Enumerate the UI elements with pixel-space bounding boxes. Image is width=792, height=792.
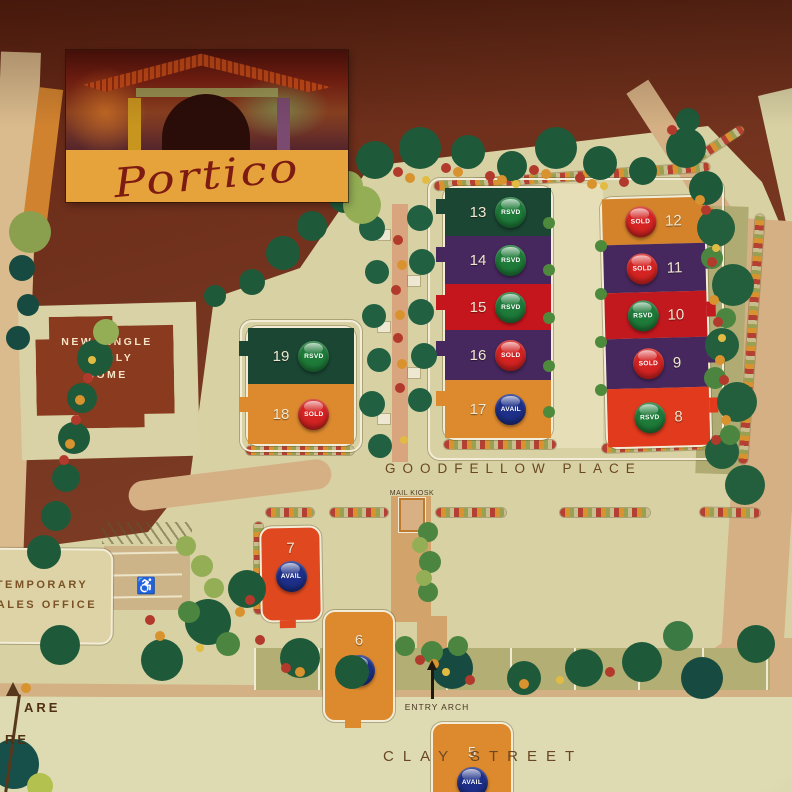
flower-bed <box>266 508 314 517</box>
painting-arch <box>162 94 250 150</box>
entry-arch-arrow-line <box>431 669 434 699</box>
lot-12[interactable]: SOLD 12 <box>602 197 705 246</box>
new-home-label: NEW SINGLE FAMILY HOME <box>42 334 172 383</box>
status-badge: AVAIL <box>275 561 307 593</box>
lot-number: 10 <box>667 306 684 323</box>
lot-7[interactable]: 7 AVAIL <box>259 525 323 622</box>
status-badge: RSVD <box>634 401 666 433</box>
lot-number: 8 <box>674 408 683 425</box>
walk-pad <box>378 230 390 240</box>
lot-19[interactable]: 19 RSVD <box>248 328 354 384</box>
lot-14[interactable]: 14 RSVD <box>445 236 551 284</box>
status-badge: SOLD <box>626 252 658 284</box>
lot-number: 11 <box>667 259 683 276</box>
lot-number: 16 <box>470 347 487 364</box>
lot-number: 6 <box>355 632 363 649</box>
parking-hatch-stripes <box>102 522 192 544</box>
lot-11[interactable]: SOLD 11 <box>603 243 706 294</box>
status-badge: RSVD <box>495 292 526 323</box>
lot-6[interactable]: 6 AVAIL <box>323 610 395 722</box>
walk-pad <box>408 276 420 286</box>
status-badge: SOLD <box>495 340 526 371</box>
lot-number: 12 <box>665 212 682 229</box>
lot-column-18-19: 19 RSVD 18 SOLD <box>246 326 356 446</box>
status-badge: AVAIL <box>495 394 526 425</box>
status-badge: SOLD <box>298 399 329 430</box>
street-label-goodfellow-place: GOODFELLOW PLACE <box>385 461 642 476</box>
status-badge: RSVD <box>495 197 526 228</box>
painting-column-right <box>277 98 290 150</box>
temporary-sales-office-label: TEMPORARY SALES OFFICE <box>0 576 110 616</box>
flower-bed <box>700 507 760 517</box>
lot-16[interactable]: 16 SOLD <box>445 330 551 380</box>
lot-number: 7 <box>286 540 295 557</box>
lot-number: 19 <box>273 348 290 365</box>
lot-13[interactable]: 13 RSVD <box>445 188 551 236</box>
status-badge: RSVD <box>298 341 329 372</box>
lot-number: 15 <box>470 299 487 316</box>
status-badge: RSVD <box>627 299 659 331</box>
street-label-clay-street: CLAY STREET <box>383 748 583 765</box>
walk-pad <box>378 322 390 332</box>
lot-15[interactable]: 15 RSVD <box>445 284 551 330</box>
logo-wordmark: Portico <box>112 145 302 207</box>
flower-bed <box>436 508 506 517</box>
lot-number: 14 <box>470 252 487 269</box>
portico-painting <box>66 50 348 150</box>
walk-pad <box>378 414 390 424</box>
lot-9[interactable]: SOLD 9 <box>605 337 708 390</box>
mail-kiosk-icon <box>399 498 425 532</box>
status-badge: RSVD <box>495 245 526 276</box>
walk-pad <box>408 368 420 378</box>
lot-number: 13 <box>470 204 487 221</box>
status-badge: AVAIL <box>344 655 375 686</box>
flower-bed <box>330 508 388 517</box>
site-plan-photo: NEW SINGLE FAMILY HOME TEMPORARY SALES O… <box>0 0 792 792</box>
lot-number: 18 <box>273 406 290 423</box>
entry-arch-label: ENTRY ARCH <box>392 702 482 712</box>
status-badge: SOLD <box>625 205 657 237</box>
mail-kiosk-label: MAIL KIOSK <box>380 490 444 497</box>
status-badge: AVAIL <box>457 767 488 792</box>
lot-8[interactable]: RSVD 8 <box>607 387 710 448</box>
you-are-here-label-line2: RE <box>5 732 29 747</box>
lot-column-8-12: SOLD 12 SOLD 11 RSVD 10 SOLD 9 RSVD 8 <box>600 195 713 450</box>
lot-17[interactable]: 17 AVAIL <box>445 380 551 438</box>
lot-column-13-17: 13 RSVD 14 RSVD 15 RSVD 16 SOLD 17 AVAIL <box>443 186 553 440</box>
wheelchair-icon: ♿ <box>136 576 156 596</box>
mid-walkway <box>392 204 408 462</box>
logo-name-band: Portico <box>66 150 348 202</box>
flower-bed <box>560 508 650 517</box>
lot-number: 17 <box>470 401 487 418</box>
status-badge: SOLD <box>633 347 665 379</box>
lot-10[interactable]: RSVD 10 <box>604 291 707 340</box>
you-are-here-label-line1: ARE <box>24 700 60 715</box>
painting-column-left <box>128 98 141 150</box>
lot-number: 9 <box>673 354 682 371</box>
logo-board: Portico <box>66 50 348 202</box>
lot-18[interactable]: 18 SOLD <box>248 384 354 444</box>
